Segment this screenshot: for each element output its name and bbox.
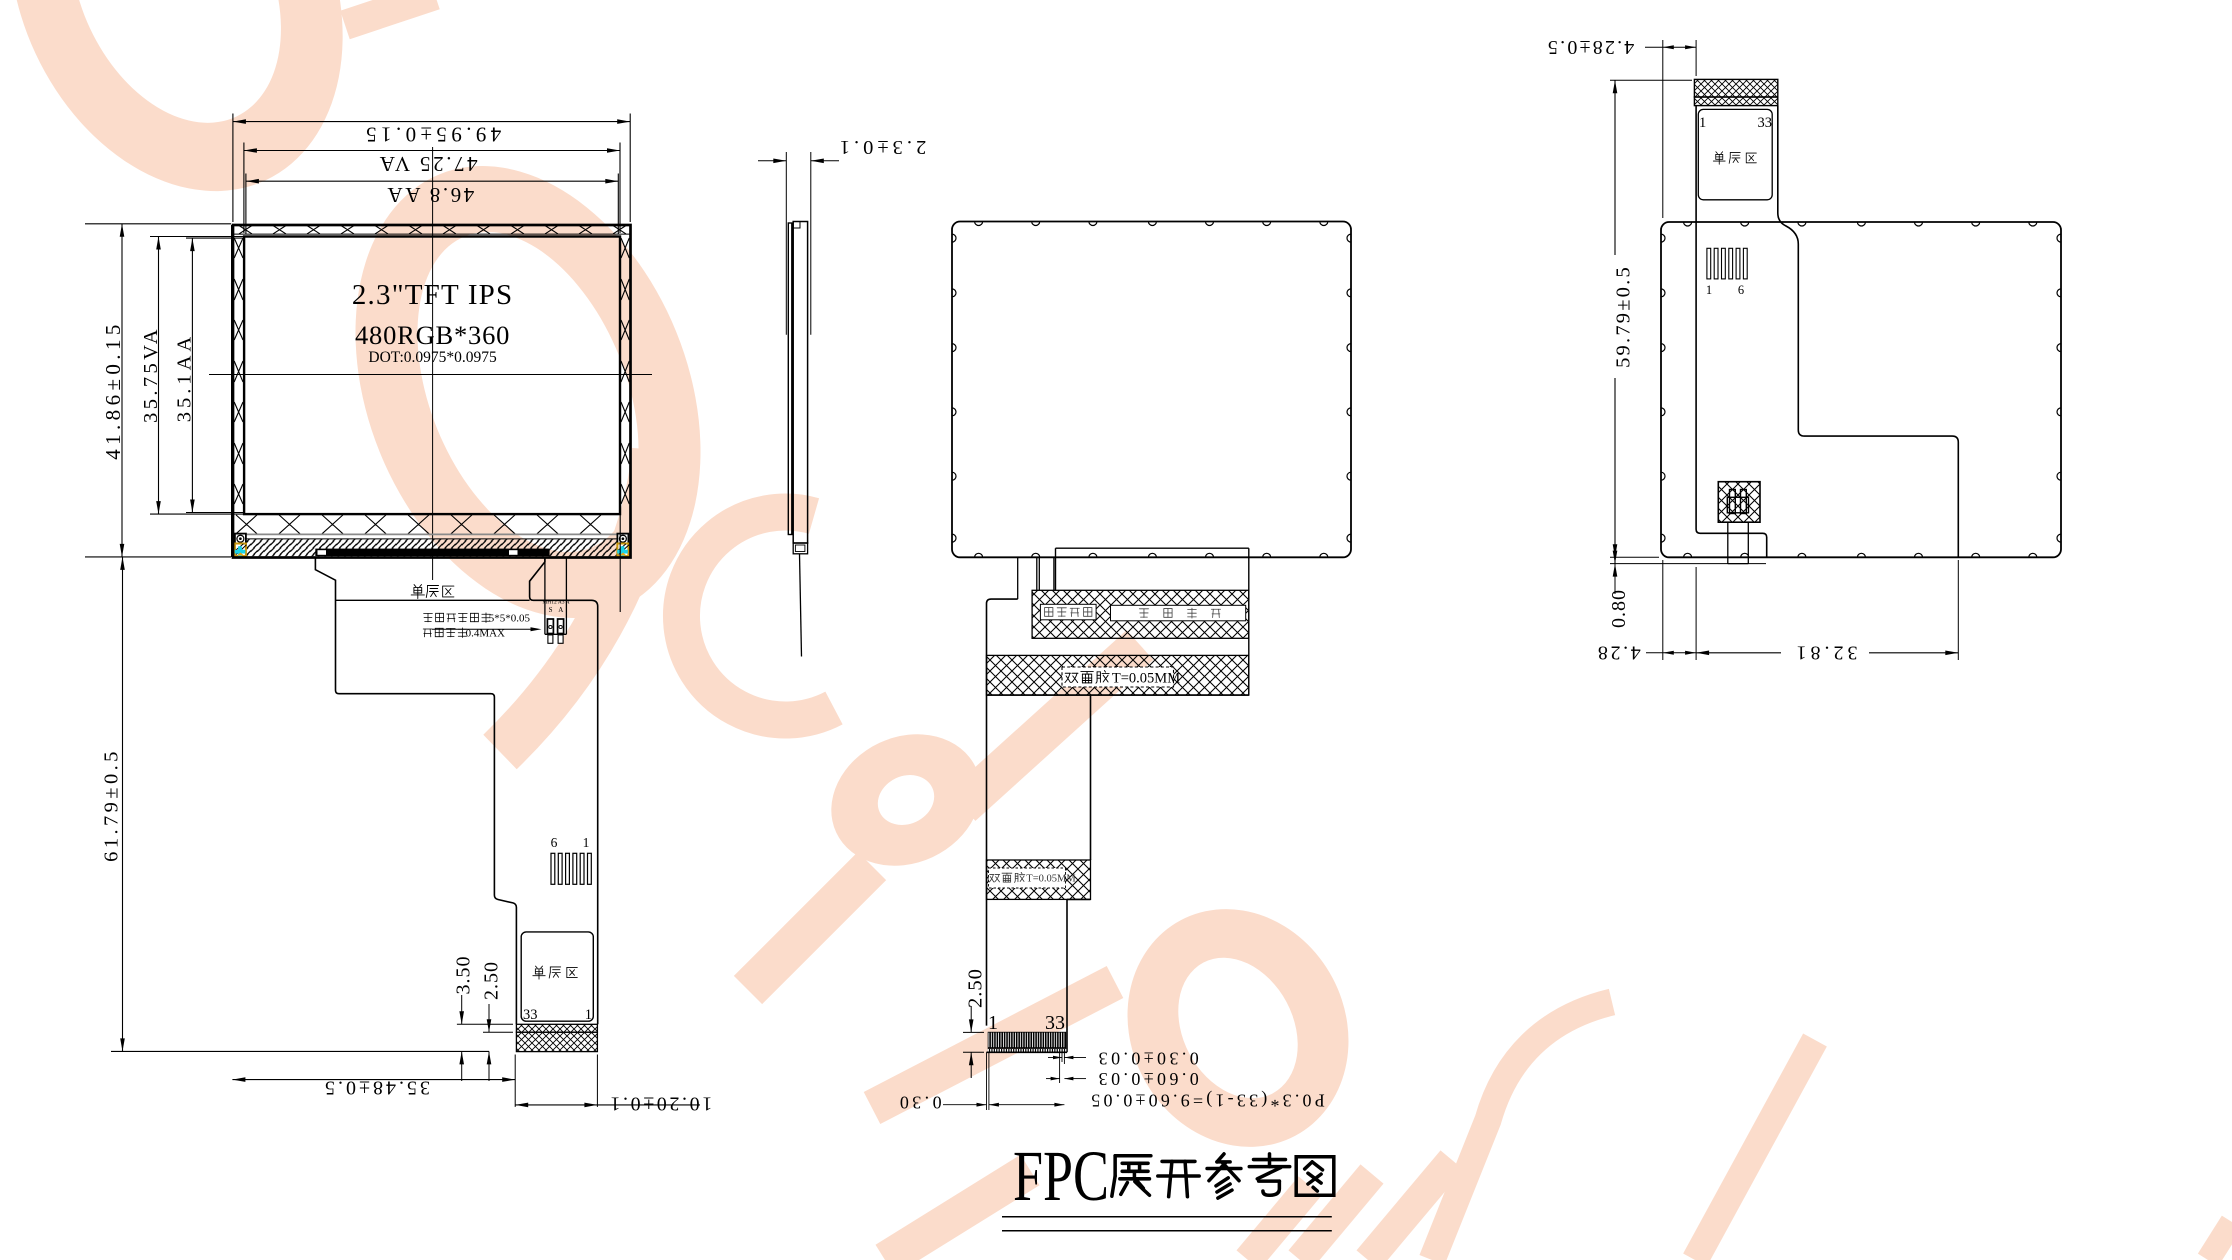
svg-text:T=0.05MM: T=0.05MM <box>1112 671 1180 687</box>
svg-text:1: 1 <box>988 1012 998 1034</box>
svg-text:2.3"TFT IPS: 2.3"TFT IPS <box>352 279 514 311</box>
svg-text:35.1AA: 35.1AA <box>174 333 196 422</box>
svg-text:S: S <box>549 606 553 614</box>
svg-text:33: 33 <box>1758 115 1773 131</box>
svg-text:2.50: 2.50 <box>481 961 503 1000</box>
svg-text:10.20±0.1: 10.20±0.1 <box>608 1093 712 1115</box>
svg-text:0.30: 0.30 <box>896 1093 941 1113</box>
svg-text:33: 33 <box>523 1007 538 1023</box>
svg-text:FPC: FPC <box>1013 1136 1109 1216</box>
svg-text:0.60±0.03: 0.60±0.03 <box>1095 1069 1198 1089</box>
svg-text:41.86±0.15: 41.86±0.15 <box>101 320 125 460</box>
svg-text:MH12 A3 A: MH12 A3 A <box>542 600 569 606</box>
svg-text:33: 33 <box>1045 1012 1065 1034</box>
svg-text:DOT:0.0975*0.0975: DOT:0.0975*0.0975 <box>368 349 497 366</box>
svg-text:A: A <box>558 606 563 614</box>
svg-text:4.28: 4.28 <box>1595 642 1640 664</box>
svg-text:0.80: 0.80 <box>1608 589 1630 628</box>
svg-text:1: 1 <box>1706 283 1712 297</box>
svg-text:61.79±0.5: 61.79±0.5 <box>101 748 123 862</box>
svg-text:P0.3*(33-1)=9.60±0.05: P0.3*(33-1)=9.60±0.05 <box>1088 1090 1325 1111</box>
svg-text:2.3±0.1: 2.3±0.1 <box>836 136 927 158</box>
svg-text:1: 1 <box>585 1007 592 1023</box>
svg-text:47.25 VA: 47.25 VA <box>377 152 478 176</box>
svg-text:2.50: 2.50 <box>965 968 987 1008</box>
svg-text:35.48±0.5: 35.48±0.5 <box>322 1077 430 1099</box>
svg-text:6: 6 <box>1738 283 1744 297</box>
svg-text:1: 1 <box>583 835 590 850</box>
svg-text:6: 6 <box>551 835 558 850</box>
svg-text:0.30±0.03: 0.30±0.03 <box>1095 1049 1198 1069</box>
svg-text:T=0.05MM: T=0.05MM <box>1026 874 1076 885</box>
svg-text:49.95±0.15: 49.95±0.15 <box>362 123 502 147</box>
svg-text:32.81: 32.81 <box>1793 641 1858 663</box>
svg-text:5*5*0.05: 5*5*0.05 <box>489 613 531 625</box>
svg-text:35.75VA: 35.75VA <box>140 326 162 423</box>
svg-text:59.79±0.5: 59.79±0.5 <box>1613 265 1635 368</box>
svg-text:3.50: 3.50 <box>453 956 475 995</box>
svg-text:4.28±0.5: 4.28±0.5 <box>1546 36 1635 58</box>
svg-text:46.8 AA: 46.8 AA <box>385 183 474 207</box>
svg-text:480RGB*360: 480RGB*360 <box>355 320 510 350</box>
svg-text:1: 1 <box>1699 115 1706 131</box>
